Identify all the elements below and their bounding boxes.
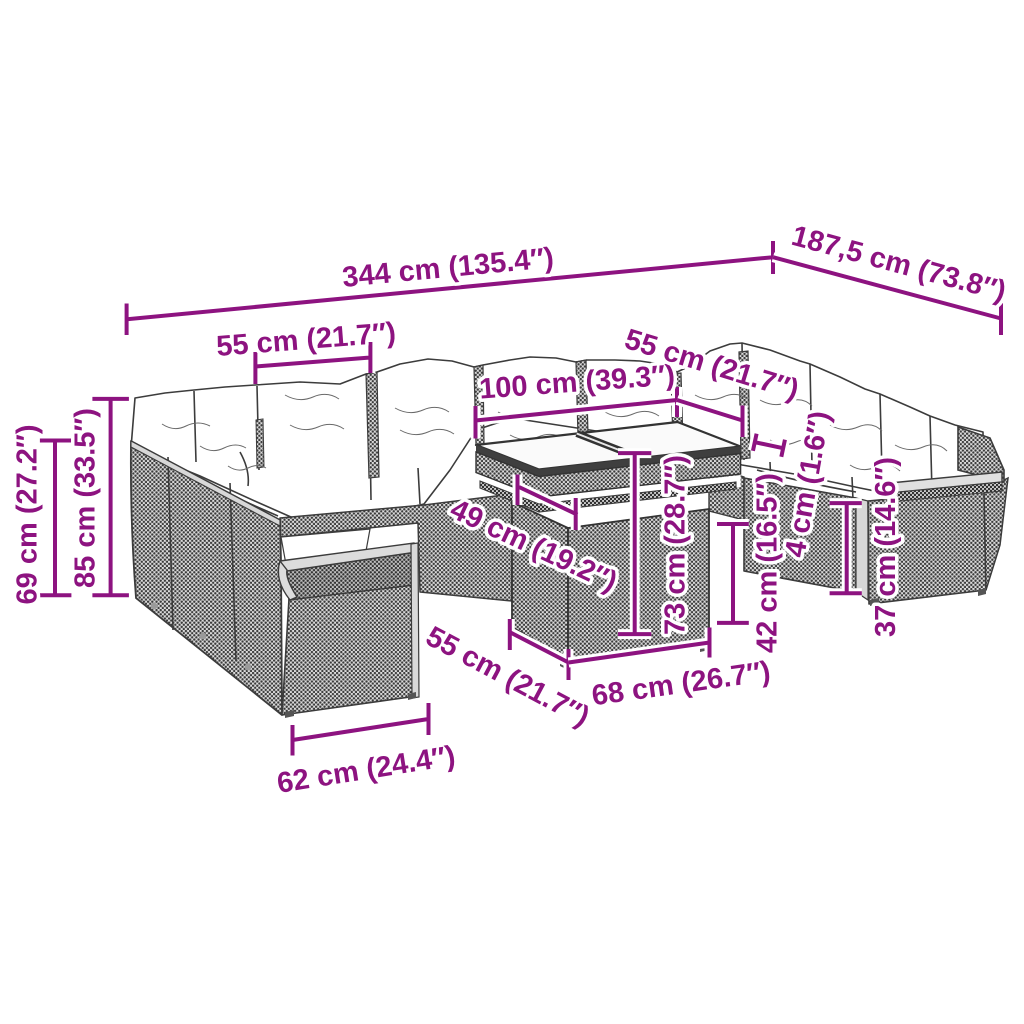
svg-text:69 cm (27.2″): 69 cm (27.2″) — [12, 425, 44, 605]
svg-text:37 cm (14.6″): 37 cm (14.6″) — [870, 457, 902, 637]
svg-text:42 cm (16.5″): 42 cm (16.5″) — [752, 473, 784, 653]
svg-text:73 cm (28.7″): 73 cm (28.7″) — [660, 455, 692, 635]
svg-text:85 cm (33.5″): 85 cm (33.5″) — [70, 408, 102, 588]
